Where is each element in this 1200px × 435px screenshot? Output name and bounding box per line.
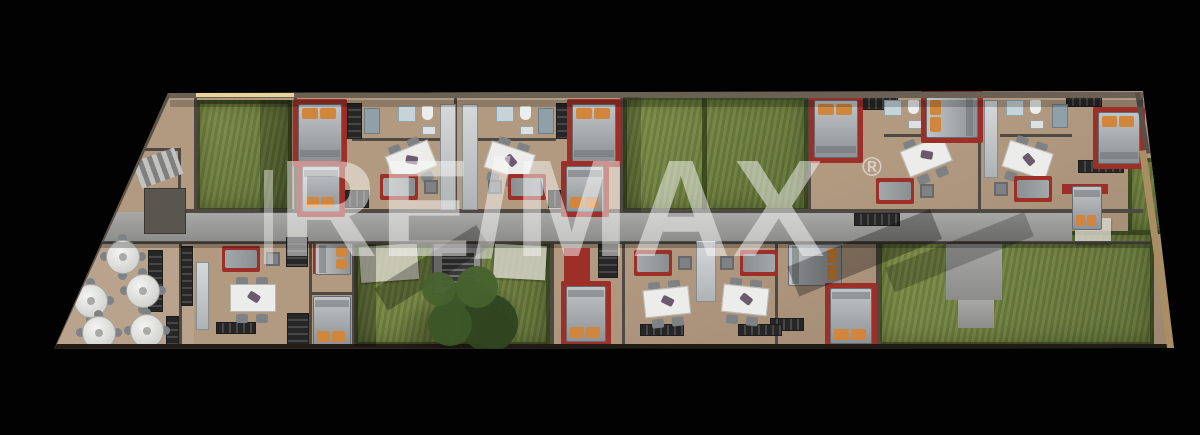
tree-canopy-blob	[478, 314, 514, 350]
bedroom-bed	[313, 296, 351, 346]
armchair	[994, 182, 1008, 196]
tree-canopy-blob	[428, 302, 472, 346]
sink	[908, 120, 922, 129]
bed-pillow	[570, 327, 584, 338]
table-center	[143, 327, 151, 335]
round-dining-table	[126, 274, 162, 310]
bed-pillow	[586, 327, 600, 338]
dining-chair	[236, 314, 248, 323]
dining-chair	[726, 314, 739, 324]
toilet	[520, 106, 531, 120]
bed-pillow	[594, 108, 610, 119]
lawn-courtyard	[878, 231, 1154, 346]
side-cabinet	[1052, 104, 1068, 128]
sink	[1030, 120, 1044, 129]
bed-pillow	[332, 331, 345, 342]
exterior-wall-top	[166, 92, 1146, 98]
dining-chair	[256, 314, 268, 323]
side-cabinet	[364, 108, 380, 134]
wardrobe-cabinet	[181, 246, 193, 306]
dining-set	[716, 279, 774, 324]
bed-blanket	[1100, 152, 1138, 159]
dining-chair	[671, 316, 684, 326]
stairwell-room	[144, 188, 186, 234]
bed-pillow	[576, 108, 592, 119]
bedroom-bed	[830, 288, 872, 344]
wardrobe-cabinet	[287, 313, 309, 345]
registered-trademark-icon: ®	[862, 152, 882, 183]
dining-chair	[746, 316, 759, 326]
bedroom-bed	[1072, 186, 1102, 230]
wall	[311, 292, 352, 295]
bed-pillow	[1087, 215, 1096, 226]
bed-blanket	[832, 292, 870, 299]
exterior-wall-bottom	[54, 344, 1170, 350]
wardrobe-cabinet	[738, 324, 782, 336]
shower	[398, 106, 416, 122]
toilet	[422, 106, 433, 120]
watermark-text: RE/MAX	[278, 132, 827, 286]
bed-pillow	[302, 108, 318, 119]
sofa-set	[876, 178, 932, 208]
side-cabinet	[538, 108, 554, 134]
kitchen-counter	[196, 262, 209, 330]
bedroom-bed	[566, 286, 606, 342]
bedroom-bed	[1098, 112, 1140, 164]
sofa-cushions	[1017, 180, 1049, 198]
corridor-extension	[958, 300, 994, 328]
bed-blanket	[1074, 190, 1100, 197]
bed-pillow	[834, 329, 849, 340]
shower	[496, 106, 514, 122]
wardrobe-cabinet	[216, 322, 256, 334]
bed-blanket	[315, 300, 349, 307]
cast-shadow	[170, 100, 1146, 107]
bed-pillow	[320, 108, 336, 119]
bed-pillow	[930, 117, 941, 132]
dining-set	[638, 281, 696, 326]
watermark-bar	[264, 170, 273, 264]
bed-pillow	[1102, 116, 1117, 127]
floorplan-render: RE/MAX ®	[0, 0, 1200, 435]
table-center	[87, 297, 95, 305]
wall-highlight	[196, 93, 294, 97]
table-center	[119, 253, 127, 261]
bed-pillow	[851, 329, 866, 340]
bed-blanket	[568, 290, 604, 297]
bed-pillow	[317, 331, 330, 342]
sofa-set	[996, 176, 1052, 206]
table-center	[95, 329, 103, 337]
wall	[194, 97, 197, 211]
sofa-cushions	[225, 250, 257, 268]
table-center	[139, 287, 147, 295]
sofa-cushions	[879, 182, 911, 200]
round-dining-table	[74, 284, 110, 320]
dining-set	[226, 280, 280, 320]
armchair	[920, 184, 934, 198]
bed-pillow	[1076, 215, 1085, 226]
bed-pillow	[1119, 116, 1134, 127]
remax-watermark: RE/MAX	[278, 140, 827, 278]
dining-chair	[652, 318, 665, 328]
